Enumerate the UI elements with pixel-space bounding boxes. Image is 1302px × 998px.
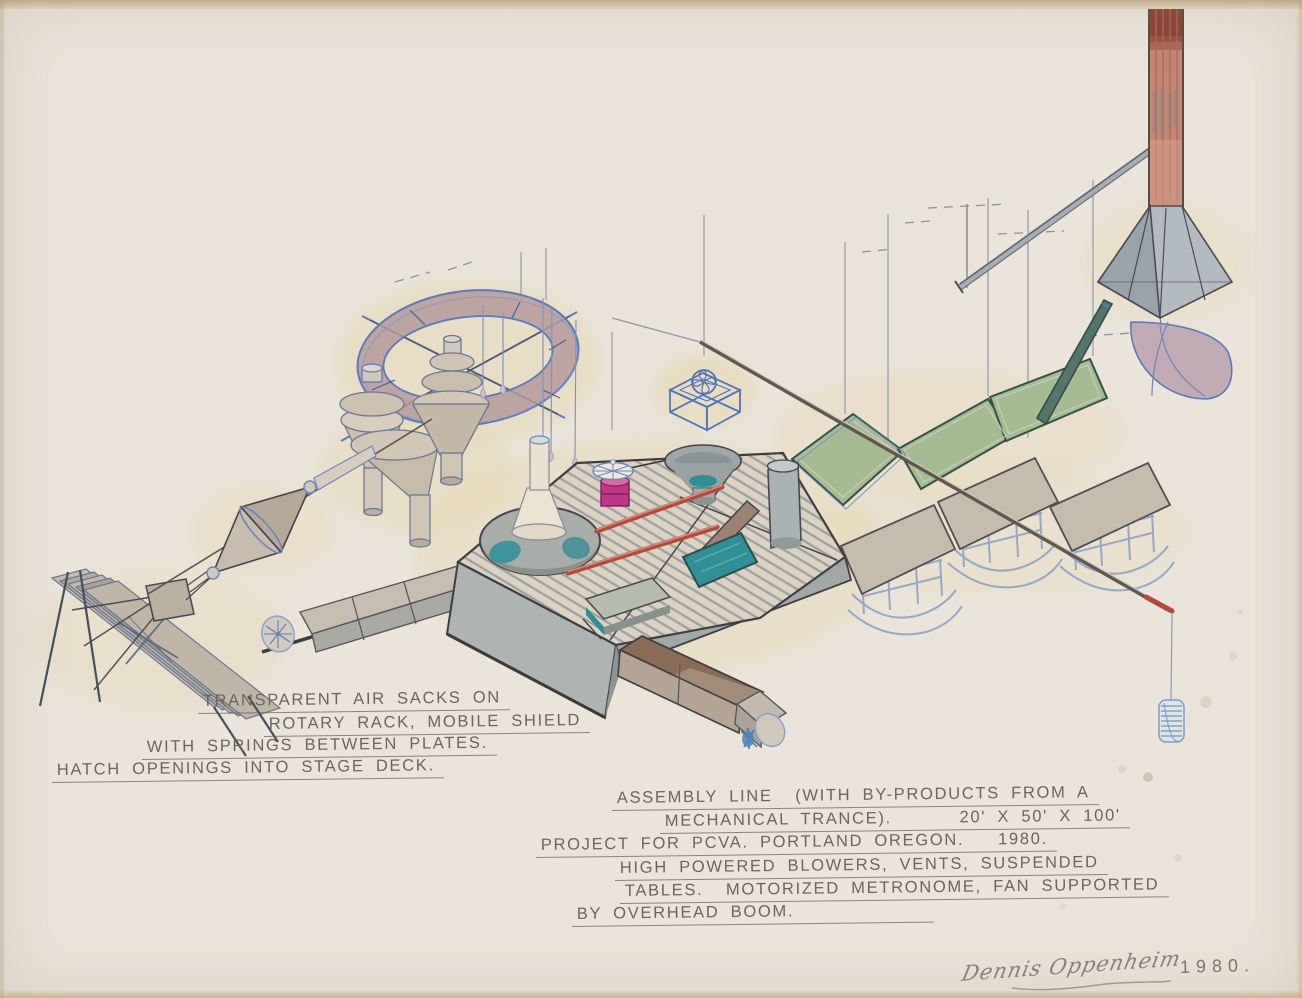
hanging-spool xyxy=(1159,613,1184,742)
left-air-duct xyxy=(257,566,468,656)
chimney-stack xyxy=(1149,0,1183,218)
left-note-line-2: ROTARY RACK, MOBILE SHIELD xyxy=(264,711,591,737)
right-note-line-6: BY OVERHEAD BOOM. xyxy=(572,901,935,927)
fan-blade xyxy=(1131,318,1232,399)
tilted-cylinder xyxy=(768,460,802,549)
signature-flourish xyxy=(1012,981,1171,990)
signature-year: 1980. xyxy=(1180,955,1256,978)
artwork-photo: TRANSPARENT AIR SACKS ON ROTARY RACK, MO… xyxy=(0,0,1302,998)
left-note-line-1: TRANSPARENT AIR SACKS ON xyxy=(198,688,510,714)
